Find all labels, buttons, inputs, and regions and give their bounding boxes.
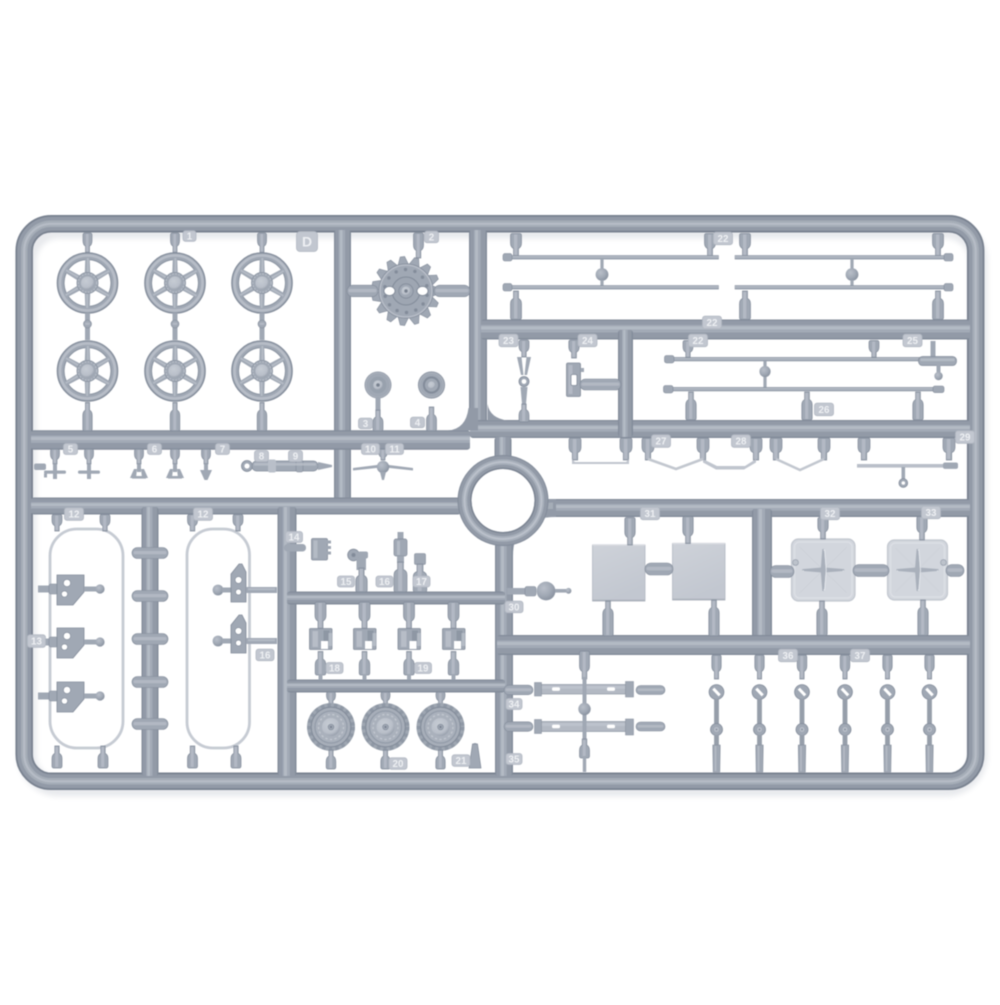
svg-text:30: 30 <box>509 603 520 614</box>
svg-text:1: 1 <box>187 232 193 243</box>
svg-text:3: 3 <box>363 419 369 430</box>
svg-text:8: 8 <box>259 452 265 463</box>
svg-text:14: 14 <box>289 533 300 544</box>
svg-text:5: 5 <box>68 445 74 456</box>
svg-text:19: 19 <box>418 664 429 675</box>
svg-text:25: 25 <box>907 336 918 347</box>
svg-text:20: 20 <box>393 759 404 770</box>
svg-text:32: 32 <box>825 509 836 520</box>
svg-text:36: 36 <box>783 651 794 662</box>
svg-text:13: 13 <box>31 637 42 648</box>
svg-text:21: 21 <box>456 756 467 767</box>
svg-text:34: 34 <box>509 700 520 711</box>
svg-text:9: 9 <box>293 452 299 463</box>
svg-text:D: D <box>302 234 312 250</box>
svg-text:24: 24 <box>582 336 593 347</box>
svg-text:17: 17 <box>416 577 427 588</box>
svg-text:31: 31 <box>645 509 656 520</box>
svg-text:22: 22 <box>707 318 718 329</box>
svg-text:10: 10 <box>365 445 376 456</box>
svg-text:16: 16 <box>379 577 390 588</box>
svg-text:7: 7 <box>220 445 226 456</box>
svg-text:37: 37 <box>855 651 866 662</box>
svg-text:15: 15 <box>341 577 352 588</box>
svg-text:12: 12 <box>69 510 80 521</box>
svg-text:35: 35 <box>509 755 520 766</box>
svg-text:18: 18 <box>329 664 340 675</box>
svg-text:22: 22 <box>693 336 704 347</box>
svg-text:28: 28 <box>736 437 747 448</box>
svg-text:11: 11 <box>389 445 400 456</box>
svg-text:22: 22 <box>718 234 729 245</box>
svg-text:29: 29 <box>960 433 971 444</box>
svg-text:23: 23 <box>503 336 514 347</box>
svg-text:33: 33 <box>926 508 937 519</box>
svg-text:4: 4 <box>415 418 421 429</box>
svg-text:6: 6 <box>152 445 158 456</box>
svg-text:12: 12 <box>198 510 209 521</box>
svg-text:16: 16 <box>260 651 271 662</box>
svg-text:27: 27 <box>656 437 667 448</box>
svg-text:2: 2 <box>429 233 435 244</box>
svg-text:26: 26 <box>819 405 830 416</box>
